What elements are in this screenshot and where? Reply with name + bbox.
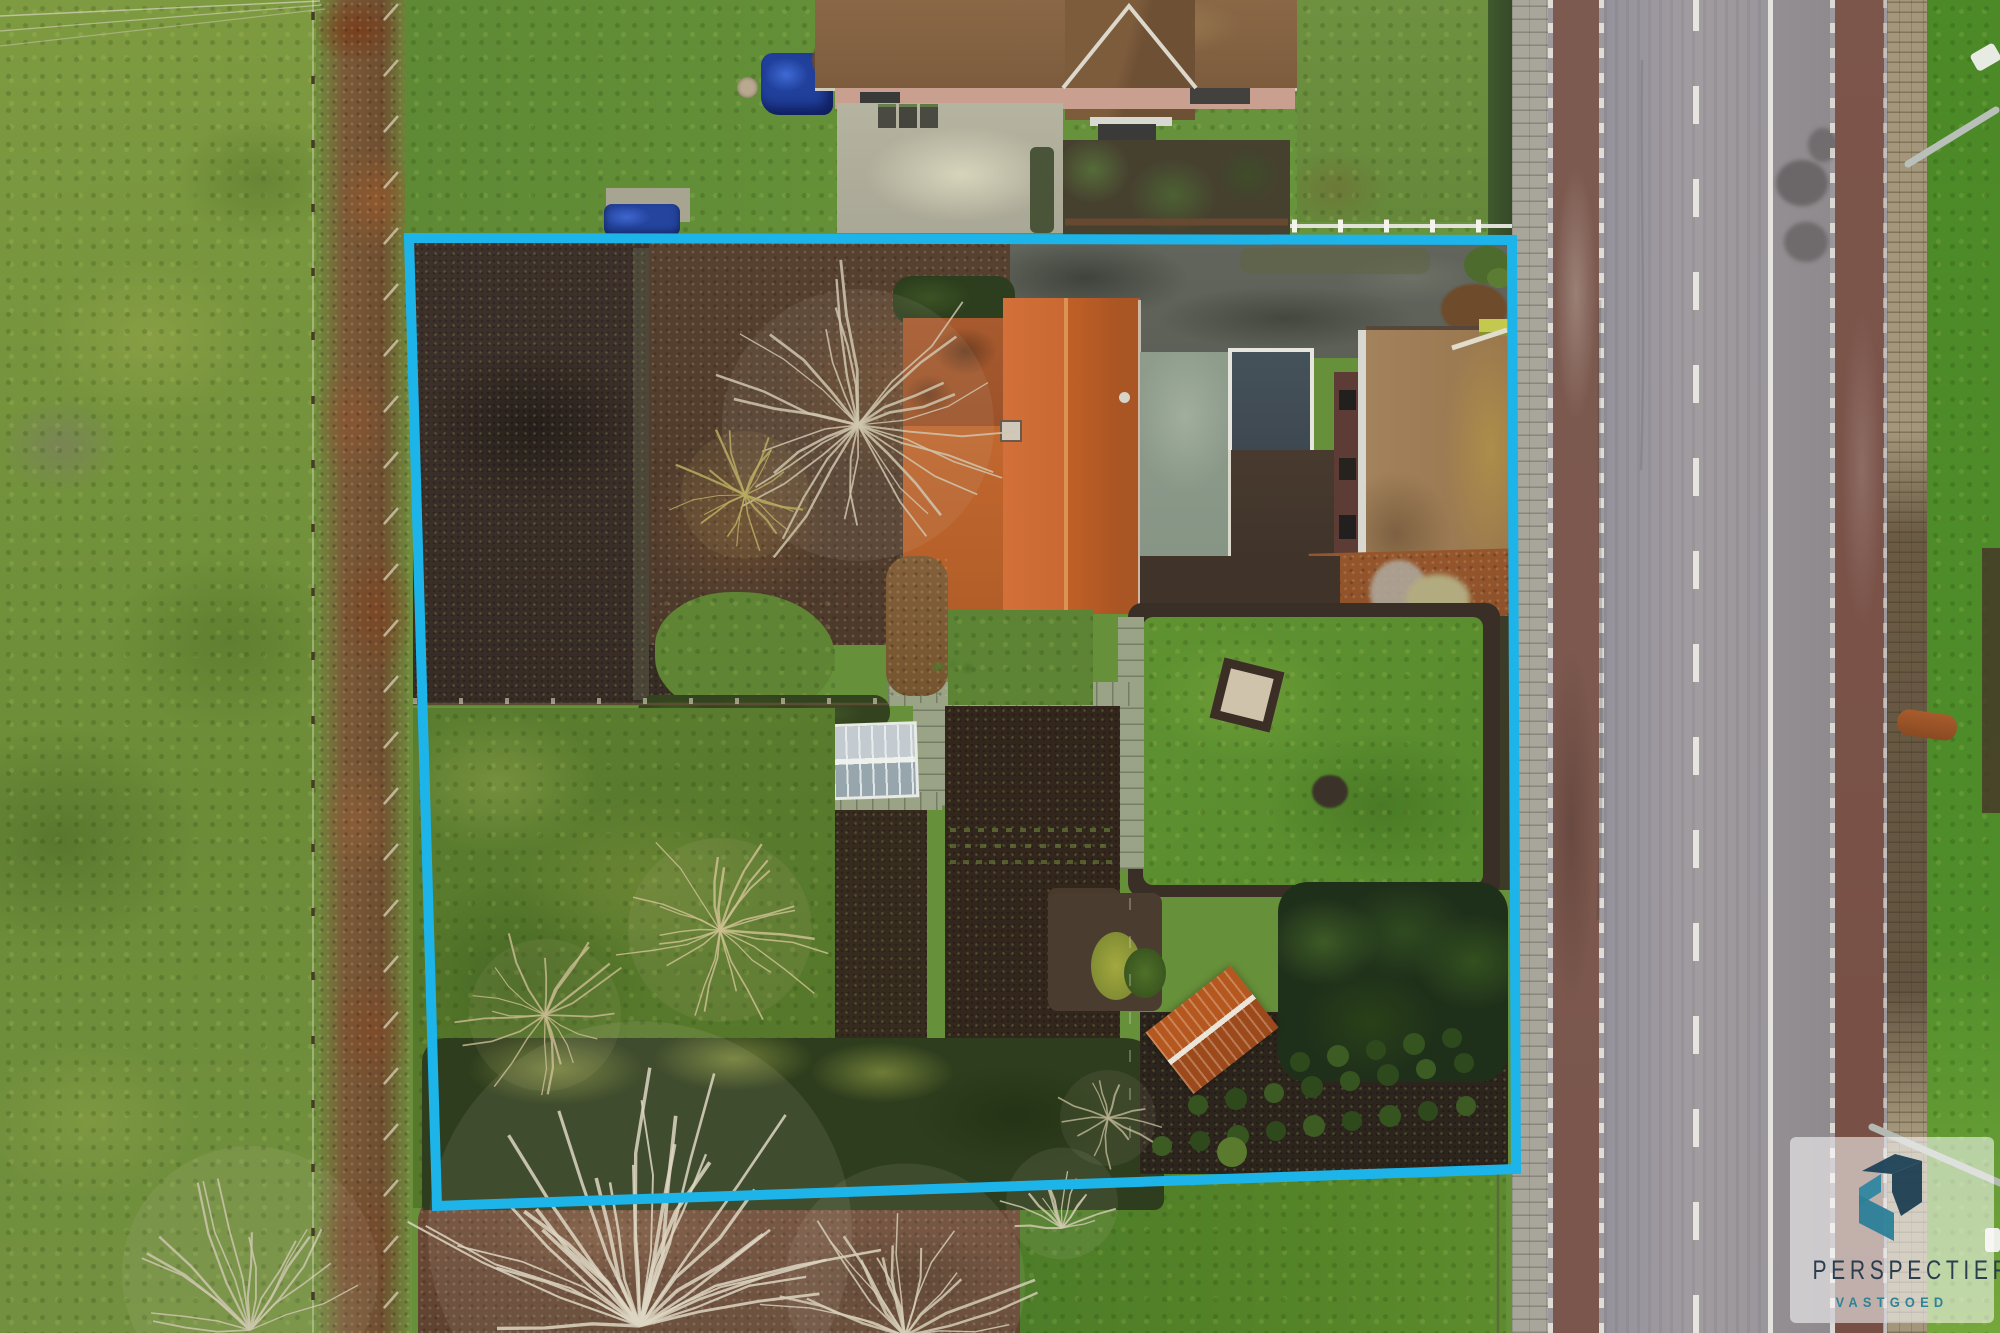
brand-logo-icon [1858,1152,1924,1244]
brand-subtitle: VASTGOED [1795,1295,1989,1310]
aerial-photo: PERSPECTIEF VASTGOED [0,0,2000,1333]
property-boundary-outline [409,238,1516,1206]
watermark-panel: PERSPECTIEF VASTGOED [1790,1137,1994,1323]
brand-name: PERSPECTIEF [1812,1255,1971,1286]
boundary-overlay [0,0,2000,1333]
logo-face-front [1859,1195,1894,1241]
